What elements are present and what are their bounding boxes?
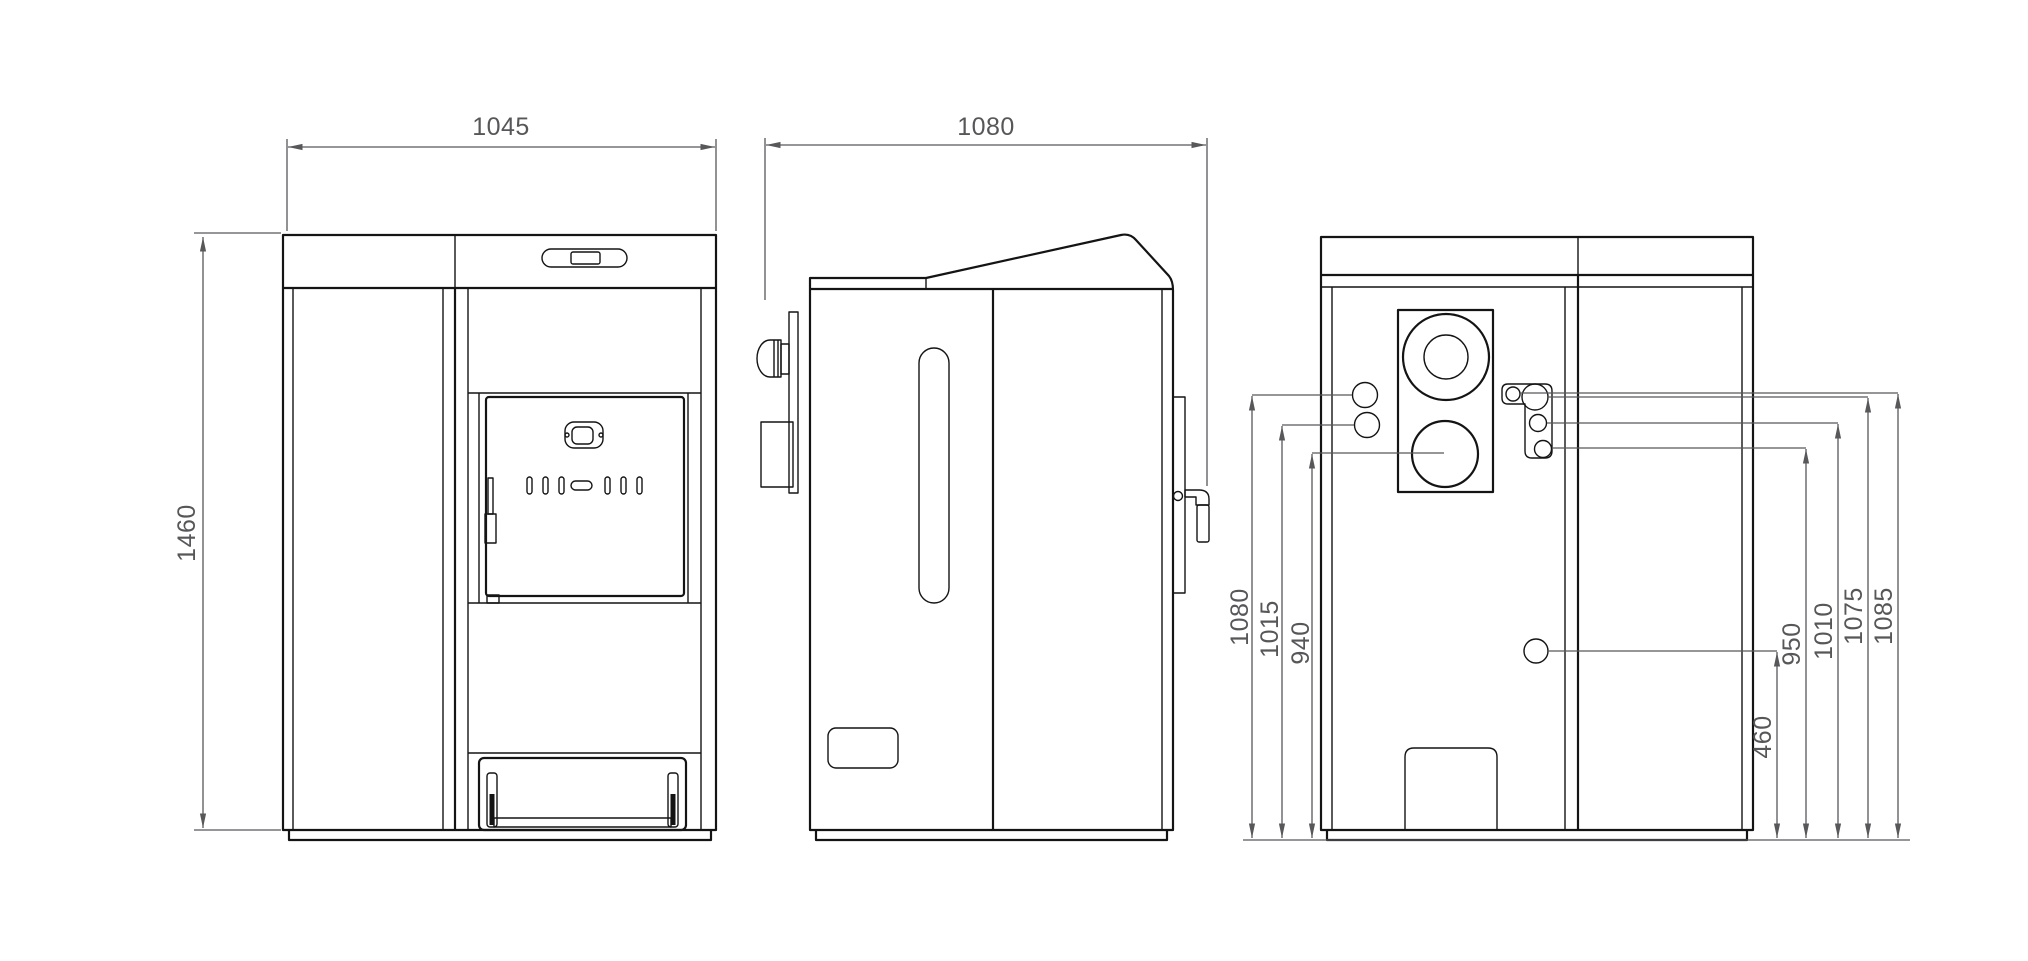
front-base — [289, 830, 711, 840]
flue-outlet — [1403, 314, 1489, 400]
rear-lever-arm — [1185, 490, 1209, 505]
handle-pin-right — [599, 433, 603, 437]
side-view — [757, 235, 1209, 840]
side-base — [816, 830, 1167, 840]
side-label-plate — [828, 728, 898, 768]
dim-label-rear-460: 460 — [1749, 715, 1777, 758]
dim-label-rear-1080: 1080 — [1226, 588, 1254, 646]
dim-label-rear-940: 940 — [1287, 621, 1315, 664]
ash-drawer — [479, 758, 686, 830]
dimension-lines — [194, 138, 1910, 840]
control-display — [571, 252, 600, 264]
side-body-outline — [810, 235, 1173, 830]
drain-port — [1524, 639, 1548, 663]
dim-label-front-width: 1045 — [472, 113, 530, 141]
side-handle-slot — [919, 348, 949, 603]
front-body-outline — [283, 235, 716, 830]
rear-mount-plate — [1173, 397, 1185, 593]
rear-port-upper — [1353, 383, 1378, 408]
lever-pivot — [1174, 492, 1183, 501]
door-latch-rod — [488, 478, 493, 514]
rear-view — [1321, 237, 1753, 840]
dim-label-rear-1075: 1075 — [1840, 587, 1868, 645]
rear-body-outline — [1321, 237, 1753, 830]
bracket-port-1 — [1506, 387, 1520, 401]
sensor-bracket — [1502, 384, 1552, 458]
sight-glass-oval — [571, 481, 592, 490]
bracket-port-2 — [1522, 384, 1548, 410]
rear-base — [1327, 830, 1747, 840]
door-handle-inner — [572, 427, 593, 444]
boiler-dimension-drawing: 1045 1460 1080 1080 1015 940 460 950 101… — [0, 0, 2028, 961]
dim-label-side-depth: 1080 — [957, 113, 1015, 141]
rear-lever-grip — [1197, 505, 1209, 542]
technical-drawing-canvas: 1045 1460 1080 1080 1015 940 460 950 101… — [0, 0, 2028, 961]
dim-label-rear-1010: 1010 — [1810, 602, 1838, 660]
bracket-port-3 — [1530, 415, 1547, 432]
ash-drawer-bar — [494, 818, 671, 827]
front-connector-knob — [757, 340, 789, 377]
dim-label-front-height: 1460 — [173, 504, 201, 562]
dim-label-rear-950: 950 — [1778, 622, 1806, 665]
dim-label-rear-1015: 1015 — [1256, 600, 1284, 658]
front-view — [283, 235, 716, 840]
flow-connection — [1412, 421, 1478, 487]
door-vent-slots — [527, 477, 642, 494]
rear-bottom-recess — [1405, 748, 1497, 830]
dim-label-rear-1085: 1085 — [1870, 587, 1898, 645]
rear-port-lower — [1355, 413, 1380, 438]
front-junction-box — [761, 422, 793, 487]
flue-outlet-inner — [1424, 335, 1468, 379]
dimension-labels: 1045 1460 1080 1080 1015 940 460 950 101… — [173, 113, 1898, 759]
handle-pin-left — [565, 433, 569, 437]
bracket-port-4 — [1535, 441, 1552, 458]
